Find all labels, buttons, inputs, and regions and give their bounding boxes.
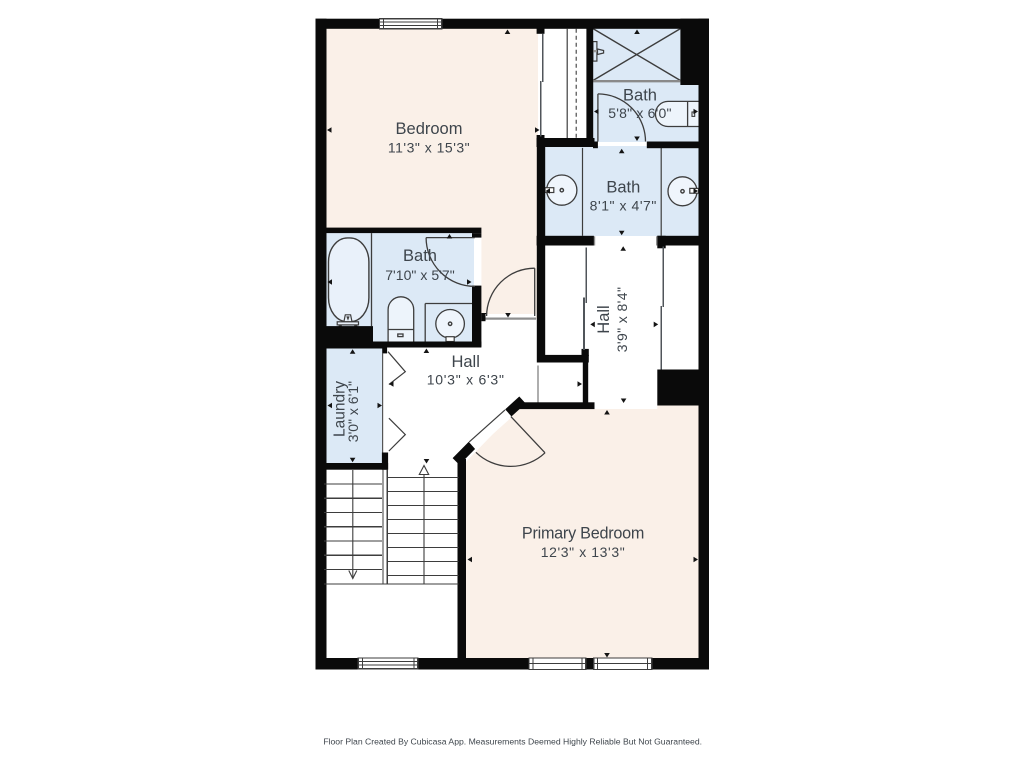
svg-text:Primary Bedroom: Primary Bedroom xyxy=(522,525,644,543)
svg-text:Bath: Bath xyxy=(606,179,640,197)
svg-text:Bath: Bath xyxy=(403,247,437,265)
svg-text:Hall: Hall xyxy=(451,353,479,371)
svg-text:8'1" x 4'7": 8'1" x 4'7" xyxy=(590,197,657,213)
svg-text:3'9" x 8'4": 3'9" x 8'4" xyxy=(614,287,630,353)
svg-text:11'3" x 15'3": 11'3" x 15'3" xyxy=(388,139,470,155)
svg-text:Bedroom: Bedroom xyxy=(396,120,463,138)
svg-text:Floor Plan Created By Cubicasa: Floor Plan Created By Cubicasa App. Meas… xyxy=(323,737,702,747)
svg-text:5'8" x 6'0": 5'8" x 6'0" xyxy=(608,105,671,121)
svg-text:12'3" x 13'3": 12'3" x 13'3" xyxy=(541,544,626,560)
svg-text:10'3" x 6'3": 10'3" x 6'3" xyxy=(427,372,505,388)
svg-text:7'10" x 5'7": 7'10" x 5'7" xyxy=(385,267,455,283)
svg-text:Hall: Hall xyxy=(595,305,613,333)
svg-text:3'0" x 6'1": 3'0" x 6'1" xyxy=(345,381,361,442)
svg-text:Bath: Bath xyxy=(623,87,657,105)
